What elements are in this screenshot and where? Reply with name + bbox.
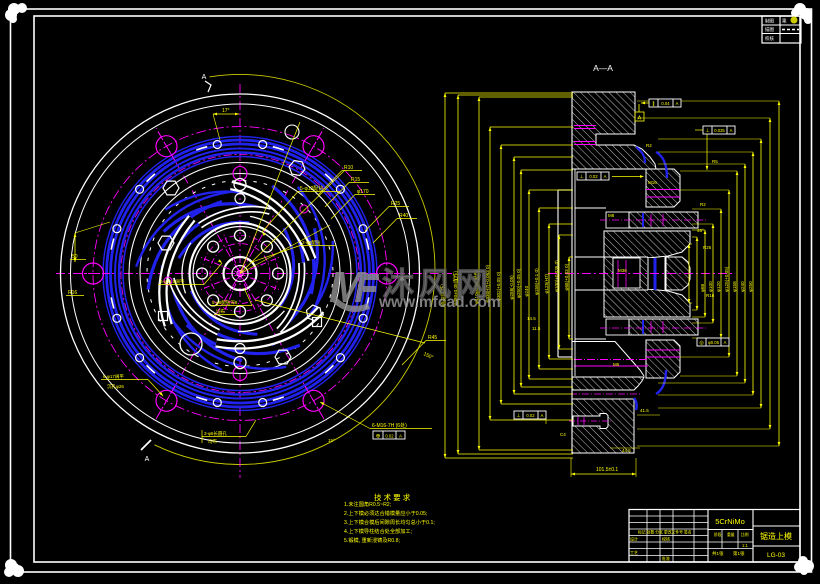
svg-text:标记 处数 分区 更改文件号 签名: 标记 处数 分区 更改文件号 签名 [638,530,692,535]
svg-text:1:1: 1:1 [742,543,748,548]
svg-text:φ250(+0.05 0): φ250(+0.05 0) [516,268,521,298]
svg-text:A: A [541,413,544,418]
svg-text:φ125(H7): φ125(H7) [544,273,549,293]
svg-text:M: M [329,263,367,312]
svg-text:1.未注圆角R0.5~R2;: 1.未注圆角R0.5~R2; [344,500,391,508]
svg-text:⊥: ⊥ [579,174,583,180]
svg-text:沉孔φ26: 沉孔φ26 [107,383,124,390]
svg-text:0.02: 0.02 [385,433,394,438]
svg-text:φ240: φ240 [740,281,745,292]
svg-text:6-M16-7H (6处): 6-M16-7H (6处) [372,422,407,429]
svg-text:4.上下模导柱结合处全部加工;: 4.上下模导柱结合处全部加工; [344,527,412,535]
svg-text:φ125(+0.05): φ125(+0.05) [724,266,729,292]
svg-text:校核: 校核 [662,536,670,542]
svg-text:⊥: ⊥ [705,128,709,134]
svg-text:R25: R25 [391,201,400,207]
svg-text:第1张: 第1张 [733,550,745,557]
svg-text:φ100(+0.035 0): φ100(+0.035 0) [554,260,559,292]
svg-text:5CrNiMo: 5CrNiMo [715,517,745,526]
svg-text:M16: M16 [648,180,657,185]
svg-text:φ68(+0.03 0): φ68(+0.03 0) [564,263,569,290]
svg-text:A: A [604,174,607,179]
svg-text:R25: R25 [703,245,712,250]
svg-text:φ100: φ100 [708,281,713,292]
svg-text:0.02: 0.02 [589,174,598,179]
svg-text:3-φ6长圆孔: 3-φ6长圆孔 [204,430,227,437]
svg-text:R40: R40 [399,213,408,219]
svg-text:工艺: 工艺 [630,550,638,555]
svg-text:17°: 17° [222,108,230,114]
svg-text:44.5: 44.5 [622,448,631,453]
svg-text:φ158(+0.1 0): φ158(+0.1 0) [534,268,539,295]
svg-text:A: A [730,128,733,133]
svg-text:5.锻模, 重新浸铸及R0.8;: 5.锻模, 重新浸铸及R0.8; [344,536,400,544]
svg-text:描图: 描图 [765,26,774,33]
svg-text:∥: ∥ [652,101,655,107]
svg-text:锯造上模: 锯造上模 [760,531,792,541]
svg-text:A: A [676,101,679,106]
svg-text:A—A: A—A [593,63,613,73]
svg-text:φ120: φ120 [716,281,721,292]
svg-text:A: A [399,433,402,438]
svg-text:技 术 要 求: 技 术 要 求 [374,492,411,502]
svg-text:φ170: φ170 [357,189,369,195]
svg-text:2-φ8配钻: 2-φ8配钻 [302,239,321,246]
svg-text:R2: R2 [700,202,706,207]
svg-text:φ240: φ240 [524,285,529,296]
svg-text:均布: 均布 [208,438,217,445]
svg-text:A: A [202,74,207,81]
svg-text:14.5: 14.5 [527,316,536,321]
svg-text:φ258(-0.05): φ258(-0.05) [509,275,514,300]
svg-text:A: A [638,116,642,122]
svg-text:C4: C4 [560,432,566,437]
svg-text:⊕: ⊕ [376,434,381,440]
svg-text:制图: 制图 [765,18,774,25]
svg-text:R5: R5 [712,159,718,164]
svg-text:15°: 15° [328,438,335,443]
svg-text:φ0.05: φ0.05 [708,340,720,345]
svg-text:设计: 设计 [630,536,638,542]
svg-text:R45: R45 [428,335,437,341]
svg-text:均布: 均布 [216,308,225,315]
svg-text:www.mfcad.com: www.mfcad.com [378,294,501,311]
svg-text:6-φ17阔平: 6-φ17阔平 [103,373,124,380]
svg-text:R16: R16 [68,290,77,296]
svg-text:2.上下模必须达合错模量应小于0.05;: 2.上下模必须达合错模量应小于0.05; [344,509,427,517]
svg-text:6-φ11.5阔平: 6-φ11.5阔平 [160,278,185,285]
svg-text:⊥: ⊥ [516,413,520,419]
svg-text:R2: R2 [646,143,652,148]
svg-text:11.5: 11.5 [532,326,541,331]
svg-text:阶段: 阶段 [714,532,722,537]
svg-text:0.025: 0.025 [714,128,725,133]
svg-text:校核: 校核 [765,35,774,42]
svg-text:0.04: 0.04 [661,101,670,106]
svg-text:5-φ12配钻: 5-φ12配钻 [300,185,323,192]
svg-text:A: A [145,456,150,463]
svg-text:LG-03: LG-03 [767,552,785,559]
svg-text:R16: R16 [706,293,715,298]
svg-text:41.5: 41.5 [640,408,649,413]
svg-text:重量: 重量 [727,532,735,537]
svg-text:R10: R10 [344,165,353,171]
svg-text:共1张: 共1张 [712,550,724,557]
svg-text:比例: 比例 [741,532,749,537]
svg-text:M8: M8 [608,213,615,218]
svg-text:M36: M36 [618,268,627,273]
svg-text:批准: 批准 [662,555,670,561]
svg-text:◎: ◎ [699,340,704,346]
svg-text:M5: M5 [613,362,620,367]
svg-text:φ68: φ68 [700,283,705,292]
svg-text:R15: R15 [351,177,360,183]
svg-text:5-φ8配钻深8: 5-φ8配钻深8 [212,299,238,306]
svg-text:101.5±0.1: 101.5±0.1 [596,467,618,473]
svg-text:3.上下模合模后间隙周长均匀总小于0.1;: 3.上下模合模后间隙周长均匀总小于0.1; [344,518,435,526]
svg-text:45°: 45° [697,228,704,233]
svg-text:φ158: φ158 [732,281,737,292]
svg-text:0.02: 0.02 [526,413,535,418]
svg-text:乘: 乘 [782,18,787,25]
svg-text:φ250: φ250 [748,281,753,292]
svg-text:A: A [724,340,727,345]
